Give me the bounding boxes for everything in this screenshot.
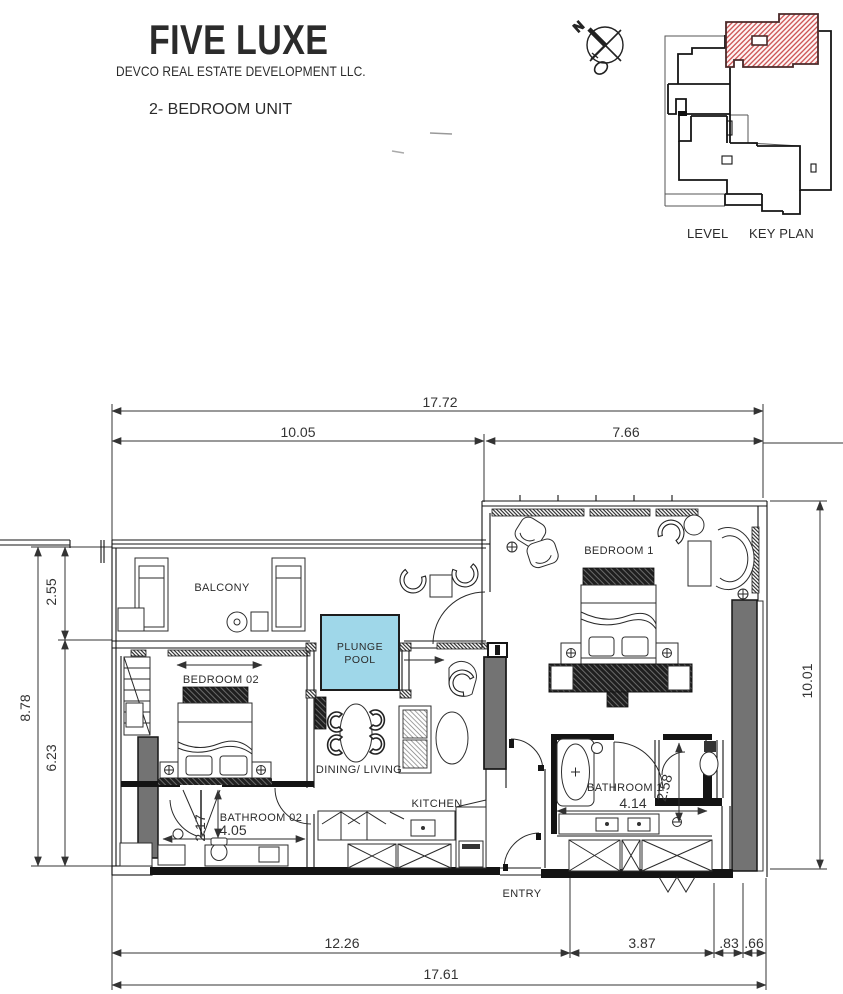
- svg-text:2.17: 2.17: [192, 814, 208, 841]
- svg-text:BEDROOM 02: BEDROOM 02: [183, 674, 259, 686]
- svg-text:10.05: 10.05: [280, 424, 315, 440]
- svg-text:8.78: 8.78: [17, 694, 33, 721]
- svg-text:4.05: 4.05: [219, 822, 246, 838]
- svg-text:6.23: 6.23: [43, 744, 59, 771]
- svg-text:DEVCO REAL ESTATE DEVELOPMENT: DEVCO REAL ESTATE DEVELOPMENT LLC.: [116, 63, 366, 79]
- svg-text:BALCONY: BALCONY: [194, 582, 250, 594]
- svg-text:.66: .66: [744, 935, 764, 951]
- svg-text:4.14: 4.14: [619, 795, 646, 811]
- svg-text:10.01: 10.01: [799, 663, 815, 698]
- svg-text:N: N: [570, 18, 587, 35]
- svg-text:ENTRY: ENTRY: [502, 888, 541, 900]
- svg-text:3.87: 3.87: [628, 935, 655, 951]
- svg-text:PLUNGE: PLUNGE: [337, 641, 383, 653]
- svg-text:2- BEDROOM UNIT: 2- BEDROOM UNIT: [149, 101, 292, 118]
- svg-text:KITCHEN: KITCHEN: [411, 798, 462, 810]
- svg-text:12.26: 12.26: [324, 935, 359, 951]
- svg-text:DINING/ LIVING: DINING/ LIVING: [316, 764, 402, 776]
- svg-text:17.72: 17.72: [422, 394, 457, 410]
- svg-text:BATHROOM 1: BATHROOM 1: [587, 782, 663, 794]
- svg-text:FIVE LUXE: FIVE LUXE: [149, 17, 328, 64]
- svg-text:POOL: POOL: [344, 654, 375, 666]
- svg-text:LEVEL: LEVEL: [687, 226, 728, 241]
- svg-text:BEDROOM 1: BEDROOM 1: [584, 545, 654, 557]
- svg-text:7.66: 7.66: [612, 424, 639, 440]
- svg-text:.83: .83: [719, 935, 739, 951]
- svg-text:KEY PLAN: KEY PLAN: [749, 226, 814, 241]
- svg-text:2.55: 2.55: [43, 578, 59, 605]
- svg-text:17.61: 17.61: [423, 966, 458, 982]
